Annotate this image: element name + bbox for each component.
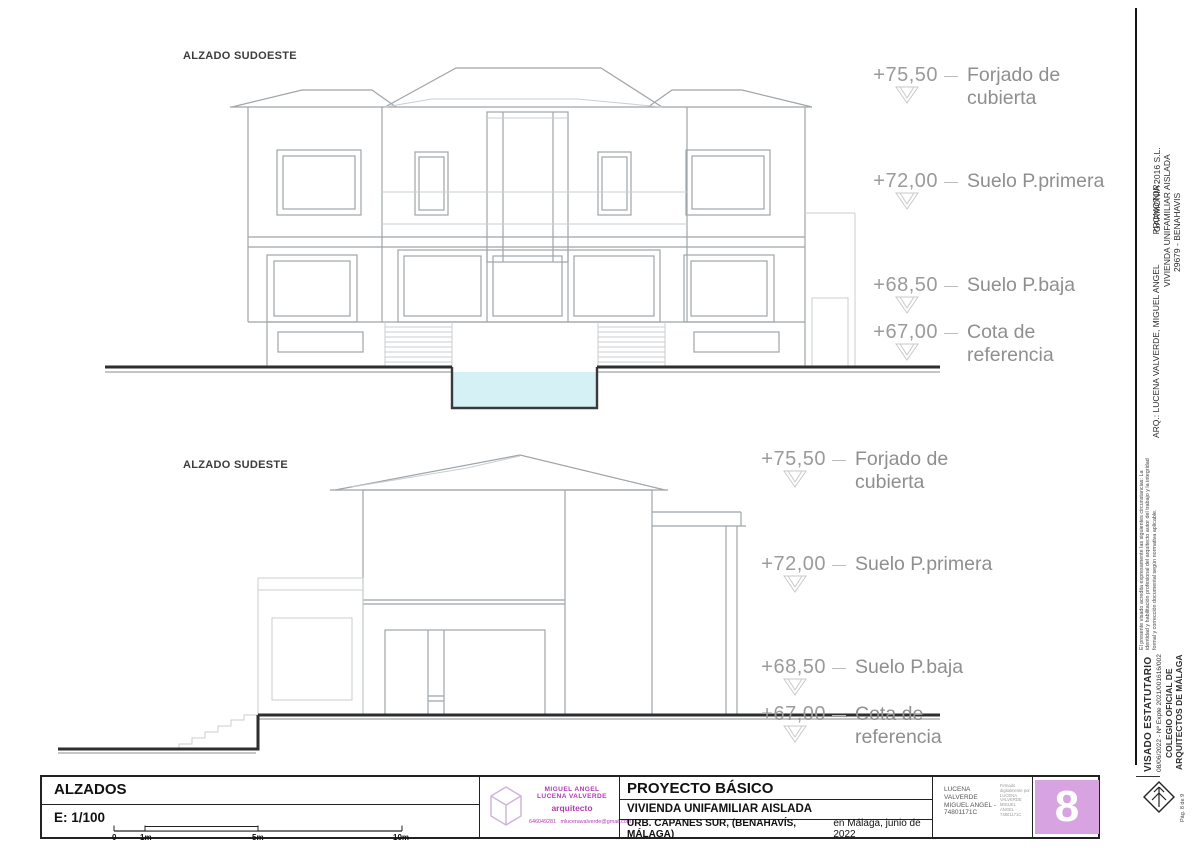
marker-dash bbox=[832, 460, 846, 461]
elevation-drawings bbox=[0, 0, 1200, 848]
title-block: ALZADOS E: 1/100 0 1m 5m 10m MIGUEL ANGE… bbox=[40, 775, 1100, 839]
level-marker-icon bbox=[782, 677, 808, 697]
project-info: PROYECTO BÁSICO VIVIENDA UNIFAMILIAR AIS… bbox=[619, 777, 932, 837]
visado-title: VISADO ESTATUTARIO bbox=[1143, 657, 1154, 772]
elevation-2-title: ALZADO SUDESTE bbox=[183, 459, 288, 471]
level-label: Forjado decubierta bbox=[967, 64, 1060, 110]
drawing-sheet: ALZADO SUDOESTE ALZADO SUDESTE +75,50 Fo… bbox=[0, 0, 1200, 848]
level-marker-icon bbox=[894, 85, 920, 105]
signature-block: LUCENA VALVERDE MIGUEL ANGEL - 74801171C… bbox=[932, 777, 1032, 837]
signature-detail: Firmado digitalmente por LUCENA VALVERDE… bbox=[1000, 784, 1030, 818]
level-label: Cota dereferencia bbox=[967, 321, 1054, 367]
scale-bar: 0 1m 5m 10m bbox=[110, 817, 450, 841]
sheet-number-cell: 8 bbox=[1032, 777, 1102, 837]
level-value: +67,00 bbox=[873, 321, 938, 344]
level-marker-icon bbox=[782, 469, 808, 489]
architect-contact: 646049281 mlucenavalverde@gmail.com bbox=[529, 819, 615, 825]
marker-dash bbox=[832, 565, 846, 566]
level-marker-icon bbox=[894, 342, 920, 362]
drawing-title: ALZADOS bbox=[54, 781, 127, 798]
level-label: Cota dereferencia bbox=[855, 703, 942, 749]
titleblock-hline bbox=[42, 804, 479, 805]
marker-dash bbox=[832, 668, 846, 669]
level-marker: +68,50 Suelo P.baja bbox=[748, 656, 963, 697]
level-value: +75,50 bbox=[873, 64, 938, 87]
visado-reference: 08/06/2022 - Nº Expte 2021/001616/002 bbox=[1156, 654, 1163, 772]
visado-note: El presente visado acredita expresamente… bbox=[1139, 455, 1158, 650]
marker-dash bbox=[944, 76, 958, 77]
level-marker: +75,50 Forjado decubierta bbox=[860, 64, 1060, 110]
project-date: en Málaga, junio de 2022 bbox=[833, 818, 932, 840]
sidebar-promotor: GARMONIA 2016 S.L. bbox=[1152, 147, 1162, 232]
marker-dash bbox=[944, 182, 958, 183]
level-marker: +72,00 Suelo P.primera bbox=[748, 553, 992, 594]
level-marker-icon bbox=[894, 295, 920, 315]
architect-stamp: MIGUEL ANGEL LUCENA VALVERDE arquitecto … bbox=[481, 777, 619, 837]
scale-label: E: 1/100 bbox=[54, 810, 105, 825]
project-address: URB. CAPANES SUR, (BENAHAVÍS, MÁLAGA) bbox=[627, 818, 819, 840]
svg-text:1m: 1m bbox=[140, 833, 152, 841]
level-marker: +72,00 Suelo P.primera bbox=[860, 170, 1104, 211]
level-marker-icon bbox=[894, 191, 920, 211]
level-value: +72,00 bbox=[873, 170, 938, 193]
level-value: +68,50 bbox=[761, 656, 826, 679]
sidebar-rule bbox=[1135, 8, 1137, 765]
pool-water bbox=[453, 372, 596, 408]
level-label: Suelo P.primera bbox=[967, 170, 1104, 193]
marker-dash bbox=[944, 333, 958, 334]
level-marker: +68,50 Suelo P.baja bbox=[860, 274, 1075, 315]
colegio-arquitectos-logo-icon bbox=[1143, 781, 1175, 813]
level-value: +75,50 bbox=[761, 448, 826, 471]
marker-dash bbox=[944, 286, 958, 287]
level-marker-icon bbox=[782, 724, 808, 744]
marker-dash bbox=[832, 715, 846, 716]
level-label: Suelo P.baja bbox=[967, 274, 1075, 297]
sidebar-project: VIVIENDA UNIFAMILIAR AISLADA bbox=[1162, 154, 1172, 287]
architect-role: arquitecto bbox=[529, 803, 615, 813]
project-type: PROYECTO BÁSICO bbox=[619, 777, 932, 800]
sidebar-small-rule bbox=[1136, 776, 1160, 777]
level-value: +68,50 bbox=[873, 274, 938, 297]
cube-logo-icon bbox=[487, 784, 525, 830]
elevation-1-title: ALZADO SUDOESTE bbox=[183, 50, 297, 62]
titleblock-divider bbox=[479, 777, 480, 837]
svg-text:5m: 5m bbox=[252, 833, 264, 841]
level-label: Forjado decubierta bbox=[855, 448, 948, 494]
level-marker: +67,00 Cota dereferencia bbox=[860, 321, 1054, 367]
sheet-number-badge: 8 bbox=[1035, 780, 1099, 834]
level-marker: +75,50 Forjado decubierta bbox=[748, 448, 948, 494]
signature-name: LUCENA VALVERDE MIGUEL ANGEL - 74801171C bbox=[944, 786, 998, 817]
level-value: +72,00 bbox=[761, 553, 826, 576]
level-marker-icon bbox=[782, 574, 808, 594]
colegio-line1: COLEGIO OFICIAL DE bbox=[1164, 668, 1174, 758]
page-indicator: Pág. 8 de 9 bbox=[1180, 794, 1186, 822]
level-label: Suelo P.primera bbox=[855, 553, 992, 576]
svg-text:10m: 10m bbox=[393, 833, 409, 841]
svg-text:0: 0 bbox=[112, 833, 117, 841]
level-marker: +67,00 Cota dereferencia bbox=[748, 703, 942, 749]
level-value: +67,00 bbox=[761, 703, 826, 726]
project-address-row: URB. CAPANES SUR, (BENAHAVÍS, MÁLAGA) en… bbox=[619, 820, 932, 837]
colegio-line2: ARQUITECTOS DE MÁLAGA bbox=[1174, 654, 1184, 770]
level-label: Suelo P.baja bbox=[855, 656, 963, 679]
sidebar-location: 29679 - BENAHAVIS bbox=[1172, 193, 1182, 272]
architect-name: MIGUEL ANGEL LUCENA VALVERDE bbox=[529, 786, 615, 800]
